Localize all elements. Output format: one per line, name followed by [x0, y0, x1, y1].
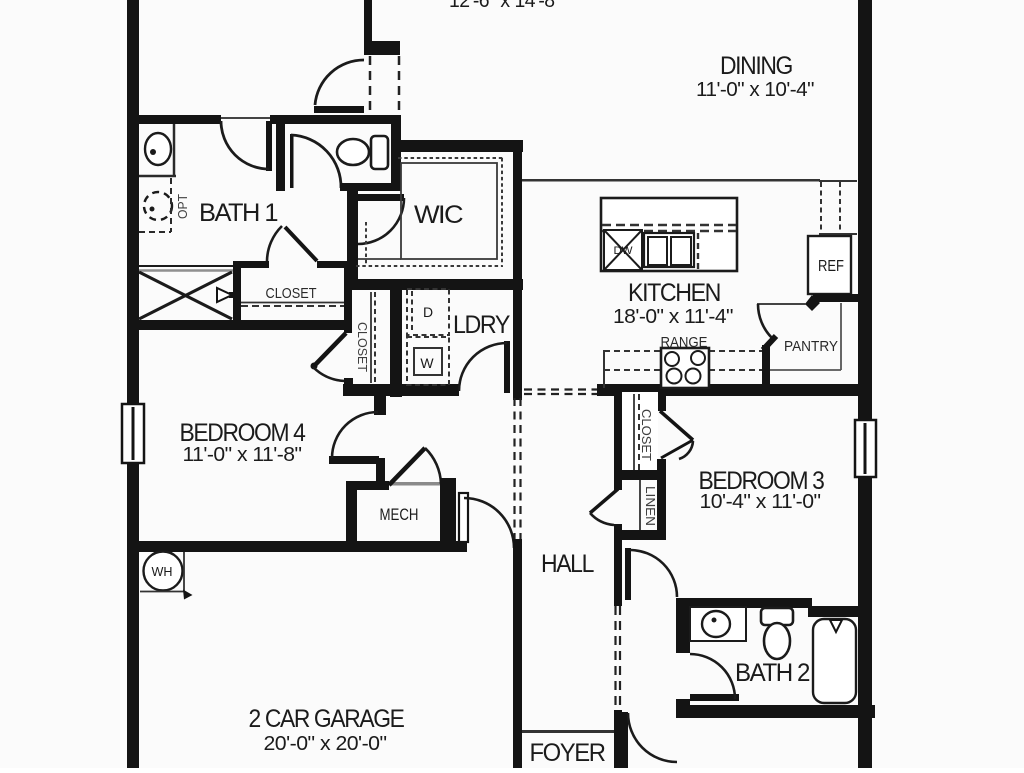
- svg-text:REF: REF: [818, 258, 844, 275]
- svg-text:OPT: OPT: [176, 194, 190, 219]
- svg-text:WIC: WIC: [414, 201, 464, 229]
- svg-text:BATH 1: BATH 1: [199, 199, 278, 227]
- svg-text:PANTRY: PANTRY: [784, 338, 838, 355]
- svg-text:KITCHEN: KITCHEN: [628, 279, 720, 307]
- svg-text:MECH: MECH: [380, 505, 419, 524]
- svg-text:11'-0" x 10'-4": 11'-0" x 10'-4": [696, 79, 814, 101]
- svg-text:CLOSET: CLOSET: [355, 322, 369, 372]
- svg-text:LINEN: LINEN: [643, 486, 657, 526]
- svg-text:CLOSET: CLOSET: [266, 285, 317, 302]
- svg-text:2 CAR GARAGE: 2 CAR GARAGE: [249, 705, 405, 733]
- svg-text:DW: DW: [614, 245, 634, 257]
- svg-text:FOYER: FOYER: [530, 739, 605, 767]
- svg-text:11'-0" x 11'-8": 11'-0" x 11'-8": [183, 444, 302, 466]
- svg-text:D: D: [423, 304, 433, 320]
- svg-text:CLOSET: CLOSET: [639, 409, 653, 461]
- svg-text:20'-0" x 20'-0": 20'-0" x 20'-0": [264, 733, 387, 755]
- svg-text:12'-6" x 14'-8": 12'-6" x 14'-8": [449, 0, 561, 12]
- svg-text:BATH 2: BATH 2: [735, 659, 810, 687]
- svg-text:HALL: HALL: [541, 550, 594, 578]
- svg-text:18'-0" x 11'-4": 18'-0" x 11'-4": [613, 306, 733, 328]
- svg-text:DINING: DINING: [720, 52, 792, 80]
- svg-text:LDRY: LDRY: [453, 311, 511, 339]
- svg-text:WH: WH: [152, 565, 173, 579]
- svg-text:W: W: [420, 355, 434, 371]
- svg-text:BEDROOM 4: BEDROOM 4: [180, 419, 306, 447]
- svg-text:10'-4" x 11'-0": 10'-4" x 11'-0": [700, 491, 821, 513]
